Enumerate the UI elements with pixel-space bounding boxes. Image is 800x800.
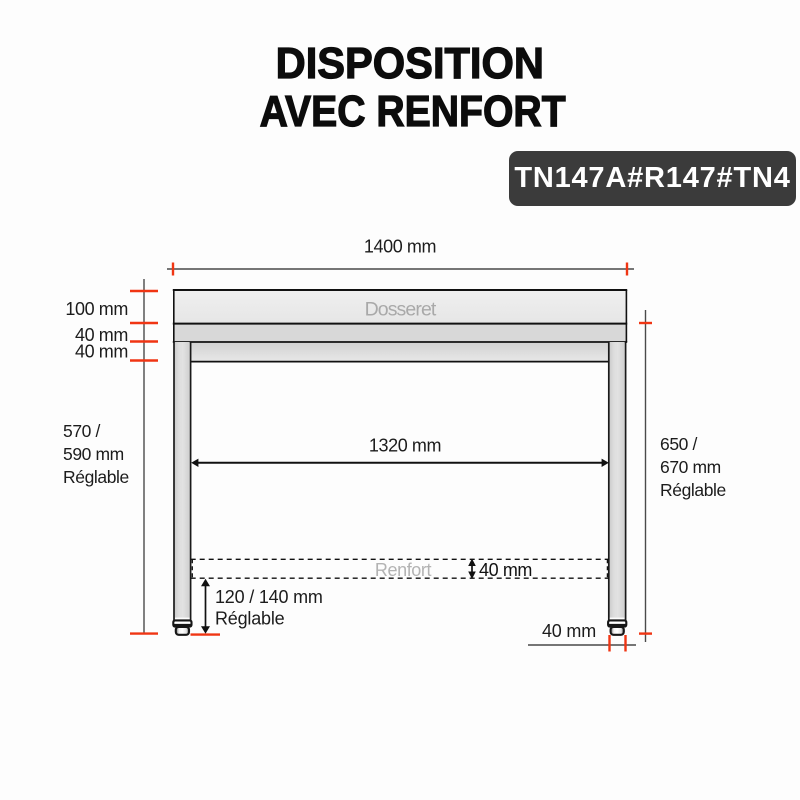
svg-text:120 / 140 mm: 120 / 140 mm (215, 587, 323, 607)
svg-text:590 mm: 590 mm (63, 444, 124, 464)
svg-text:100 mm: 100 mm (65, 299, 128, 319)
svg-text:40 mm: 40 mm (542, 621, 596, 641)
svg-text:Renfort: Renfort (375, 560, 432, 580)
svg-text:40 mm: 40 mm (75, 342, 128, 362)
svg-text:670 mm: 670 mm (660, 457, 721, 477)
svg-text:40 mm: 40 mm (479, 560, 532, 580)
svg-text:1400 mm: 1400 mm (364, 237, 436, 257)
svg-text:570 /: 570 / (63, 421, 100, 441)
svg-text:Réglable: Réglable (660, 480, 726, 500)
svg-text:Réglable: Réglable (215, 609, 285, 629)
svg-text:1320 mm: 1320 mm (369, 436, 441, 456)
svg-text:Réglable: Réglable (63, 467, 129, 487)
svg-text:Dosseret: Dosseret (365, 299, 437, 321)
svg-text:650 /: 650 / (660, 434, 697, 454)
